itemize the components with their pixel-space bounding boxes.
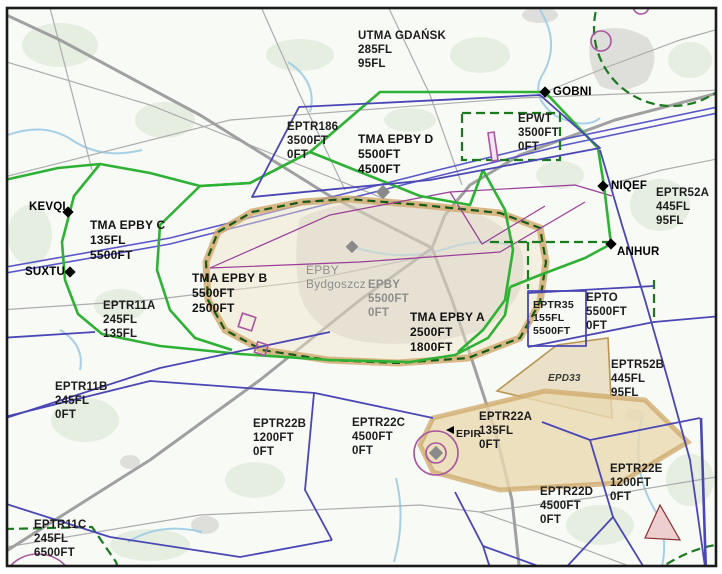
label-epto: EPTO 5500FT 0FT	[586, 291, 627, 333]
label-epby-ctr: EPBY 5500FT 0FT	[368, 278, 409, 320]
label-eptr11b: EPTR11B 245FL 0FT	[55, 380, 108, 422]
label-eptr186: EPTR186 3500FT 0FT	[287, 120, 338, 162]
label-eptr11a: EPTR11A 245FL 135FL	[103, 299, 156, 341]
label-tma-epby-d: TMA EPBY D 5500FT 4500FT	[358, 132, 433, 177]
label-epir: EPIR	[456, 428, 481, 441]
label-epwt: EPWT 3500FT 0FT	[518, 112, 559, 154]
label-eptr52a: EPTR52A 445FL 95FL	[656, 186, 709, 228]
label-eptr22c: EPTR22C 4500FT 0FT	[352, 416, 405, 458]
label-eptr22d: EPTR22D 4500FT 0FT	[540, 485, 593, 527]
airspace-map[interactable]: UTMA GDAŃSK 285FL 95FL EPTR186 3500FT 0F…	[0, 0, 722, 574]
waypoint-anhur: ANHUR	[617, 245, 660, 259]
label-tma-epby-a: TMA EPBY A 2500FT 1800FT	[410, 310, 485, 355]
label-epby-city: EPBY Bydgoszcz	[306, 263, 366, 291]
waypoint-kevqi: KEVQI	[29, 200, 66, 214]
label-eptr35: EPTR35 155FL 5500FT	[533, 299, 574, 338]
waypoint-suxtu: SUXTU	[25, 265, 65, 279]
label-epd33: EPD33	[548, 372, 581, 386]
label-utma-gdansk: UTMA GDAŃSK 285FL 95FL	[358, 29, 446, 71]
label-eptr22b: EPTR22B 1200FT 0FT	[253, 417, 306, 459]
label-tma-epby-b: TMA EPBY B 5500FT 2500FT	[192, 271, 267, 316]
waypoint-gobni: GOBNI	[553, 85, 592, 99]
label-eptr22e: EPTR22E 1200FT 0FT	[610, 462, 663, 504]
label-tma-epby-c: TMA EPBY C 135FL 5500FT	[90, 218, 165, 263]
label-eptr52b: EPTR52B 445FL 95FL	[611, 358, 664, 400]
label-eptr22a: EPTR22A 135FL 0FT	[479, 410, 532, 452]
label-eptr11c: EPTR11C 245FL 6500FT	[34, 518, 87, 560]
waypoint-niqef: NIQEF	[611, 179, 647, 193]
